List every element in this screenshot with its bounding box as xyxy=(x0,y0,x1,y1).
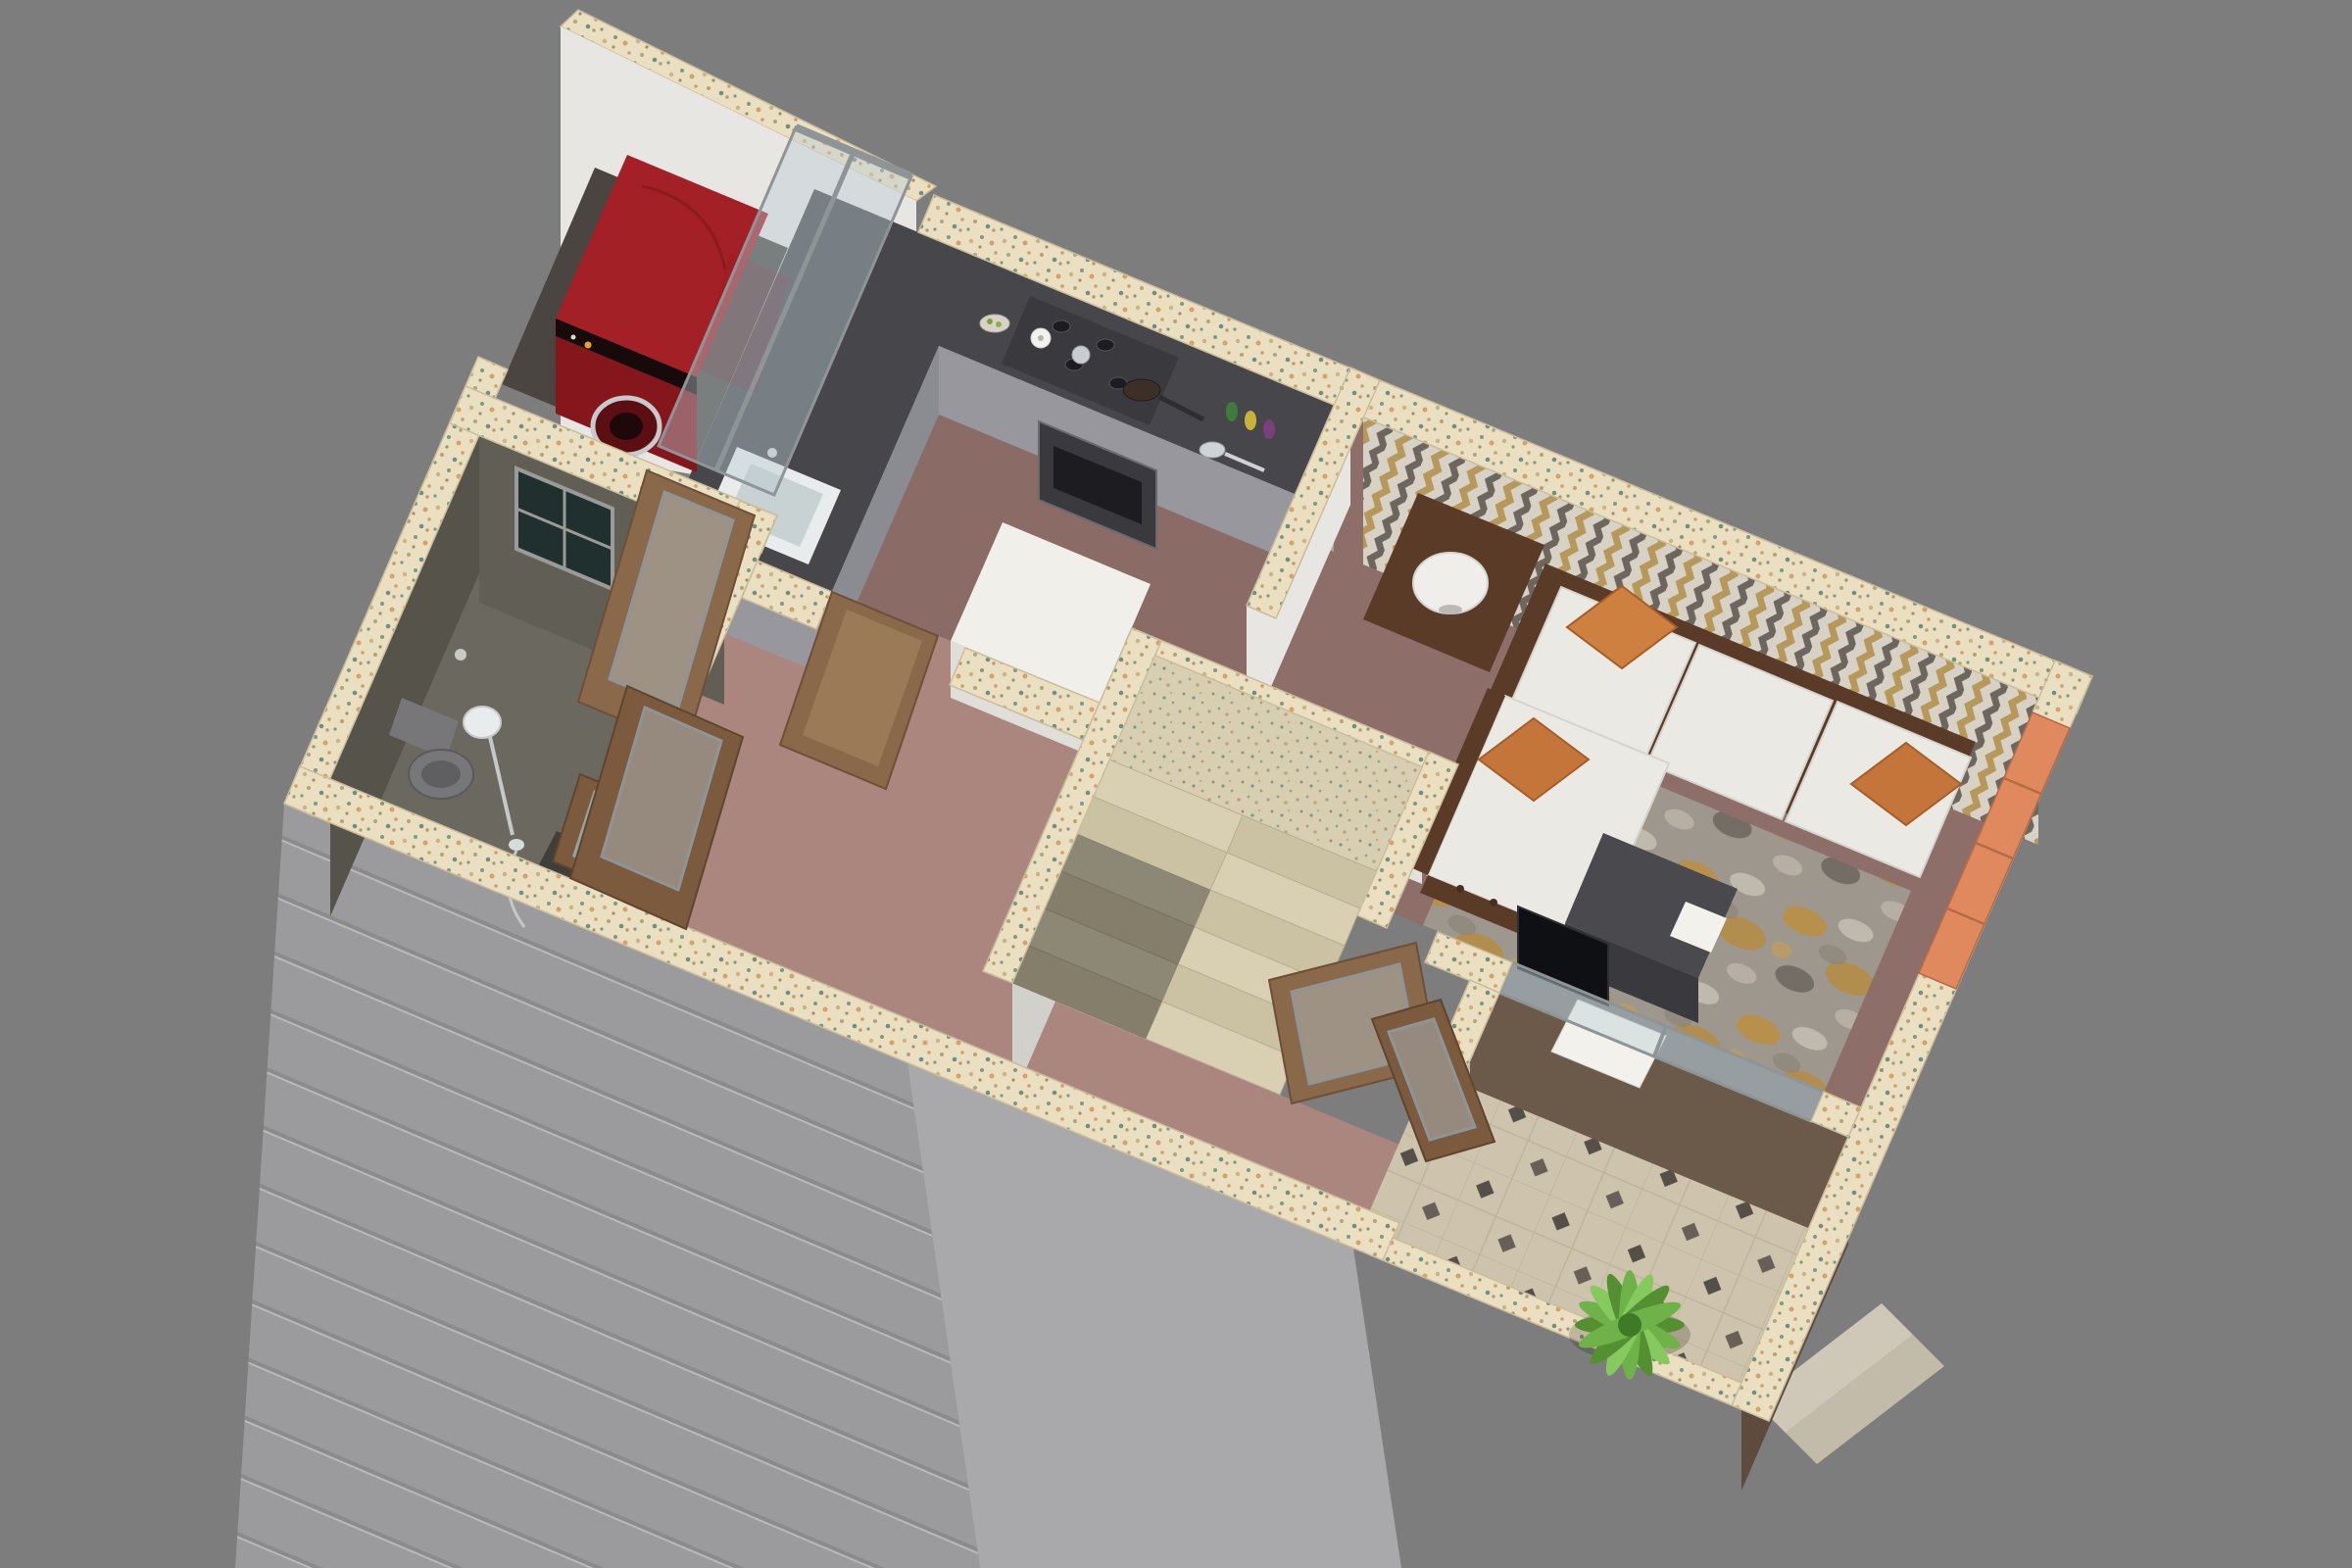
sofa-spindle xyxy=(1456,885,1464,893)
spice-bottle-yellow xyxy=(1245,411,1256,430)
render-canvas xyxy=(0,0,2352,1568)
spice-bottle-purple xyxy=(1263,419,1275,439)
washer-indicator xyxy=(585,342,592,349)
burner xyxy=(1097,339,1114,351)
mixing-bowl xyxy=(980,315,1009,332)
sofa-spindle xyxy=(1490,899,1497,906)
table-lamp xyxy=(1413,553,1488,613)
bowl-contents xyxy=(996,321,1002,327)
toilet-seat xyxy=(421,760,461,788)
burner xyxy=(1053,320,1070,332)
washer-drum-inner xyxy=(610,413,643,440)
saucepan xyxy=(1200,442,1225,458)
lamp-base xyxy=(1439,605,1462,614)
spice-bottle-green xyxy=(1226,402,1238,421)
bowl-contents xyxy=(987,318,993,324)
paper-towel-core xyxy=(1038,335,1044,341)
plant-center xyxy=(1618,1313,1641,1337)
floor-plan-render xyxy=(0,0,2352,1568)
frying-pan xyxy=(1123,379,1160,401)
shower-handset xyxy=(509,839,524,851)
canister xyxy=(1072,346,1090,364)
shower-head xyxy=(464,707,501,738)
washer-knob xyxy=(571,335,576,340)
toilet-paper-holder xyxy=(455,649,466,661)
